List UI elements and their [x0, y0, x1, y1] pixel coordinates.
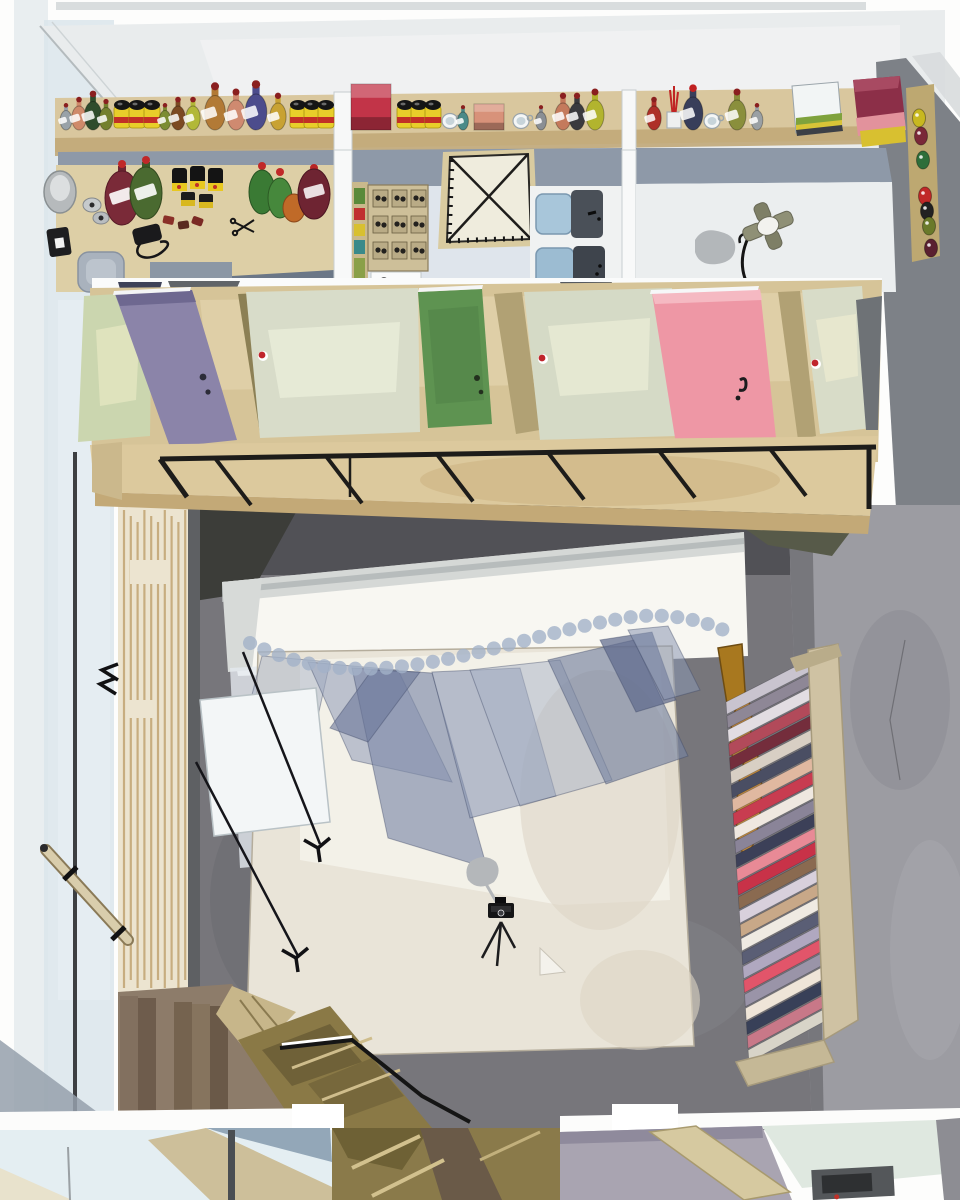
- red-knob-1: [259, 352, 266, 359]
- trestle-table-room: [430, 149, 538, 292]
- camera-lens: [498, 910, 504, 916]
- shelf-item-can: [318, 100, 334, 128]
- shelf-item-box: [351, 84, 391, 130]
- paint-workbench-room: [44, 156, 334, 292]
- camera-shadow: [466, 857, 498, 887]
- rack-bottle: [915, 127, 928, 145]
- sink-basin-1: [536, 194, 572, 234]
- canvas-panel-1: [246, 288, 420, 438]
- room-partition-1: [334, 150, 352, 295]
- watercolor-studio-painting: [0, 0, 960, 1200]
- drawer-cabinet-room: [352, 182, 430, 292]
- red-knob-3: [812, 360, 819, 367]
- back-wall-right: [636, 148, 892, 184]
- room-partition-2: [622, 150, 636, 293]
- sink-faucet-1: [571, 190, 603, 238]
- rack-bottle: [917, 151, 930, 169]
- door-green: [418, 285, 492, 428]
- left-margin-wash: [14, 0, 48, 1200]
- top-edge-wash: [56, 2, 866, 10]
- shelf-partition-1: [334, 92, 352, 152]
- shelf-item-can: [144, 100, 160, 128]
- shelf-item-can: [129, 100, 145, 128]
- shelf-partition-2: [622, 90, 636, 150]
- rack-bottle: [923, 217, 936, 235]
- painting-canvas: [0, 0, 960, 1200]
- vertical-pole: [73, 452, 77, 1128]
- rack-bottle: [925, 239, 938, 257]
- shelf-item-box: [474, 104, 504, 130]
- rack-bottle: [913, 109, 926, 127]
- shelf-item-can: [425, 100, 441, 128]
- work-lamp-room: [636, 182, 896, 292]
- double-sink-room: [530, 186, 622, 292]
- shelf-item-can: [114, 100, 130, 128]
- red-knob-2: [539, 355, 546, 362]
- lower-dark-box: [811, 1166, 894, 1200]
